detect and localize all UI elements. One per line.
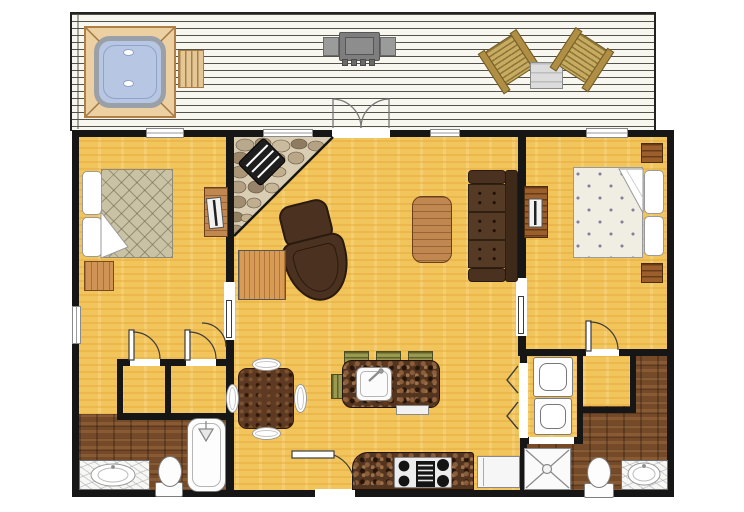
dining-table <box>238 368 294 429</box>
grill-lid <box>345 37 374 55</box>
sofa-backrest <box>505 170 518 282</box>
floor-plan-canvas <box>0 0 744 512</box>
sofa <box>468 170 518 282</box>
bifold-door-track <box>519 363 528 438</box>
side-table <box>238 250 286 300</box>
closet-left-door-opening-2 <box>186 359 216 366</box>
island-sink-basin <box>360 371 388 397</box>
dryer <box>534 398 572 435</box>
vanity-right <box>621 460 668 490</box>
window-living-right <box>430 129 460 137</box>
grill-knob <box>369 59 375 66</box>
grill-knob <box>360 59 366 66</box>
toilet-left-bowl <box>158 456 182 487</box>
deck-bench <box>178 50 204 88</box>
bed-left <box>101 169 173 258</box>
pillow <box>82 171 102 215</box>
closet-left-door-opening <box>130 359 160 366</box>
hot-tub-jet <box>123 80 134 87</box>
pocket-door-left <box>226 300 232 338</box>
nightstand-right-top <box>641 143 663 163</box>
pillow <box>644 170 664 214</box>
dishwasher-drawer <box>396 405 429 415</box>
sofa-armrest <box>468 170 506 184</box>
sofa-cushion <box>468 240 506 268</box>
range-stove <box>394 457 452 488</box>
grill-side-shelf <box>380 37 396 56</box>
dresser-tv-right <box>524 186 548 238</box>
place-setting <box>294 384 307 413</box>
grill-knob <box>351 59 357 66</box>
shower-stall <box>524 448 571 490</box>
coffee-table <box>412 196 452 263</box>
entry-door-opening <box>315 489 355 497</box>
sofa-armrest <box>468 268 506 282</box>
french-door-opening <box>332 128 390 138</box>
pillow <box>82 217 102 257</box>
window-bedroom-left <box>146 128 184 138</box>
dresser-tv-left <box>204 187 228 237</box>
grill-side-shelf <box>323 37 339 56</box>
window-bedroom-left-west <box>72 306 81 344</box>
vanity-left <box>79 460 150 490</box>
place-setting <box>252 427 281 440</box>
grill-knob <box>342 59 348 66</box>
sofa-cushion <box>468 212 506 240</box>
window-bedroom-right <box>586 128 628 138</box>
pillow <box>644 216 664 256</box>
nightstand-right-bottom <box>641 263 663 283</box>
refrigerator-door-seam <box>483 458 484 486</box>
pocket-door-right <box>518 296 524 334</box>
bathtub-inner <box>192 423 221 487</box>
place-setting <box>252 358 281 371</box>
bathroom-right-doorway <box>529 437 574 444</box>
washer <box>533 357 573 397</box>
hot-tub-jet <box>123 49 134 56</box>
bed-right <box>573 167 643 258</box>
sofa-cushion <box>468 184 506 212</box>
closet-right-door-opening <box>586 349 619 356</box>
window-living-left <box>263 129 313 137</box>
place-setting <box>226 384 239 413</box>
toilet-right-bowl <box>587 457 611 488</box>
nightstand-left <box>84 261 114 291</box>
